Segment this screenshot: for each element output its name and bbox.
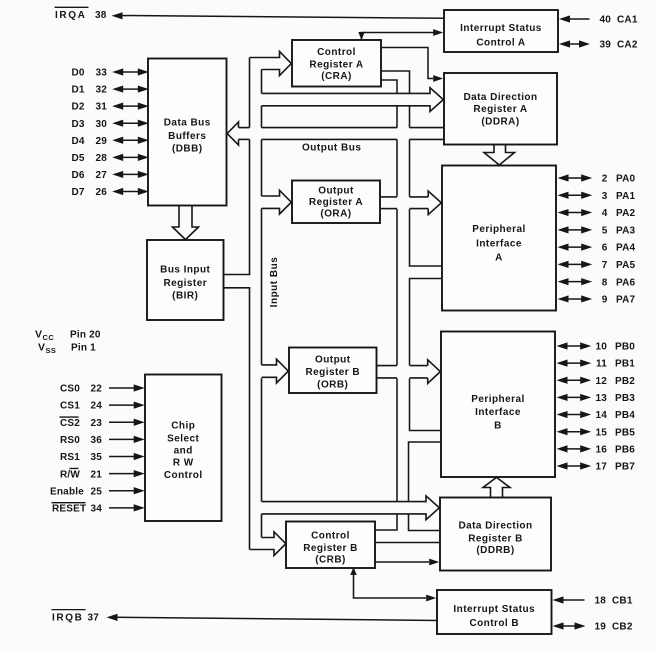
svg-text:40: 40 bbox=[599, 15, 611, 26]
svg-text:15: 15 bbox=[595, 427, 607, 438]
svg-text:9: 9 bbox=[602, 295, 608, 306]
svg-text:D2: D2 bbox=[72, 102, 85, 113]
svg-text:Register A: Register A bbox=[309, 197, 363, 208]
svg-text:CB1: CB1 bbox=[612, 596, 633, 607]
svg-text:R/W: R/W bbox=[60, 469, 80, 480]
svg-text:PA1: PA1 bbox=[616, 191, 636, 202]
svg-text:CB2: CB2 bbox=[612, 622, 633, 633]
svg-text:(DBB): (DBB) bbox=[172, 144, 203, 155]
svg-text:A: A bbox=[495, 253, 503, 264]
svg-text:PA6: PA6 bbox=[616, 277, 636, 288]
svg-text:Peripheral: Peripheral bbox=[471, 394, 524, 405]
svg-text:11: 11 bbox=[596, 359, 607, 370]
svg-text:6: 6 bbox=[602, 243, 608, 254]
svg-text:Output: Output bbox=[315, 355, 351, 366]
svg-text:PB5: PB5 bbox=[615, 427, 635, 438]
svg-text:22: 22 bbox=[90, 384, 102, 395]
svg-text:D7: D7 bbox=[72, 187, 85, 198]
svg-text:Interrupt Status: Interrupt Status bbox=[453, 604, 535, 615]
svg-text:PA0: PA0 bbox=[616, 174, 636, 185]
svg-text:PB3: PB3 bbox=[615, 393, 635, 404]
svg-text:29: 29 bbox=[95, 136, 107, 147]
svg-text:Output: Output bbox=[318, 186, 354, 197]
svg-text:Data Direction: Data Direction bbox=[463, 92, 537, 103]
svg-text:D1: D1 bbox=[72, 85, 85, 96]
svg-text:RS1: RS1 bbox=[60, 452, 80, 463]
svg-text:V: V bbox=[35, 329, 42, 341]
svg-text:PB2: PB2 bbox=[615, 376, 635, 387]
svg-text:25: 25 bbox=[90, 486, 102, 497]
svg-text:PB1: PB1 bbox=[615, 359, 635, 370]
svg-text:Register B: Register B bbox=[303, 543, 358, 554]
svg-text:14: 14 bbox=[595, 410, 607, 421]
svg-text:Register A: Register A bbox=[309, 59, 363, 70]
svg-text:7: 7 bbox=[602, 260, 608, 271]
svg-text:13: 13 bbox=[595, 393, 607, 404]
svg-text:Data Direction: Data Direction bbox=[458, 521, 532, 532]
svg-text:Peripheral: Peripheral bbox=[472, 224, 525, 235]
svg-text:CA1: CA1 bbox=[617, 15, 638, 26]
svg-text:PA4: PA4 bbox=[616, 243, 636, 254]
svg-text:27: 27 bbox=[95, 170, 107, 181]
svg-text:8: 8 bbox=[602, 277, 608, 288]
svg-text:3: 3 bbox=[602, 191, 608, 202]
svg-text:Control B: Control B bbox=[469, 618, 519, 629]
svg-text:Select: Select bbox=[167, 434, 199, 445]
svg-text:Register A: Register A bbox=[473, 104, 527, 115]
svg-text:D3: D3 bbox=[72, 119, 85, 130]
svg-text:CS2: CS2 bbox=[60, 418, 80, 429]
svg-text:Interface: Interface bbox=[475, 407, 521, 418]
svg-text:Control: Control bbox=[317, 47, 356, 58]
svg-text:Register B: Register B bbox=[305, 367, 360, 378]
svg-text:PA5: PA5 bbox=[616, 260, 636, 271]
svg-text:2: 2 bbox=[602, 174, 608, 185]
svg-text:RS0: RS0 bbox=[60, 435, 80, 446]
svg-text:(ORB): (ORB) bbox=[317, 380, 348, 391]
svg-text:19: 19 bbox=[594, 622, 606, 633]
svg-text:10: 10 bbox=[595, 342, 607, 353]
svg-text:17: 17 bbox=[595, 462, 607, 473]
svg-text:31: 31 bbox=[95, 102, 107, 113]
svg-text:Control: Control bbox=[311, 531, 350, 542]
svg-text:24: 24 bbox=[90, 401, 102, 412]
svg-text:CS1: CS1 bbox=[60, 401, 80, 412]
svg-text:D0: D0 bbox=[72, 68, 85, 79]
svg-text:28: 28 bbox=[95, 153, 107, 164]
svg-text:Register B: Register B bbox=[468, 533, 523, 544]
svg-text:SS: SS bbox=[46, 346, 57, 355]
svg-text:(BIR): (BIR) bbox=[172, 291, 198, 302]
svg-text:CS0: CS0 bbox=[60, 384, 80, 395]
svg-text:(DDRB): (DDRB) bbox=[476, 545, 514, 556]
svg-text:5: 5 bbox=[602, 225, 608, 236]
svg-text:34: 34 bbox=[90, 504, 102, 515]
svg-text:PA2: PA2 bbox=[616, 208, 636, 219]
svg-text:Control: Control bbox=[164, 470, 203, 481]
svg-text:23: 23 bbox=[90, 418, 102, 429]
svg-text:D4: D4 bbox=[72, 136, 85, 147]
svg-text:RESET: RESET bbox=[52, 504, 86, 515]
svg-text:Buffers: Buffers bbox=[168, 131, 206, 142]
svg-text:IRQA: IRQA bbox=[55, 10, 86, 21]
svg-text:Bus Input: Bus Input bbox=[160, 265, 210, 276]
svg-text:(ORA): (ORA) bbox=[320, 208, 351, 219]
svg-text:D5: D5 bbox=[72, 153, 85, 164]
svg-text:26: 26 bbox=[95, 187, 107, 198]
svg-text:PB7: PB7 bbox=[615, 462, 635, 473]
svg-text:Control A: Control A bbox=[476, 37, 525, 48]
svg-text:38: 38 bbox=[95, 10, 107, 21]
svg-text:and: and bbox=[174, 446, 193, 457]
svg-text:Register: Register bbox=[163, 278, 207, 289]
svg-text:IRQB: IRQB bbox=[52, 612, 83, 623]
svg-text:PB6: PB6 bbox=[615, 444, 635, 455]
svg-text:Interrupt Status: Interrupt Status bbox=[460, 23, 542, 34]
svg-text:PA3: PA3 bbox=[616, 225, 636, 236]
svg-text:Data Bus: Data Bus bbox=[164, 118, 211, 129]
svg-text:Input Bus: Input Bus bbox=[269, 257, 280, 308]
svg-text:Output Bus: Output Bus bbox=[302, 143, 361, 154]
svg-text:36: 36 bbox=[90, 435, 102, 446]
svg-text:(DDRA): (DDRA) bbox=[481, 116, 519, 127]
svg-text:30: 30 bbox=[95, 119, 107, 130]
svg-text:Chip: Chip bbox=[171, 421, 195, 432]
svg-text:PA7: PA7 bbox=[616, 295, 636, 306]
svg-text:Pin 1: Pin 1 bbox=[71, 343, 96, 354]
svg-text:PB4: PB4 bbox=[615, 410, 635, 421]
svg-text:PB0: PB0 bbox=[615, 342, 635, 353]
svg-text:18: 18 bbox=[594, 596, 606, 607]
svg-text:32: 32 bbox=[95, 85, 107, 96]
svg-text:33: 33 bbox=[95, 68, 107, 79]
svg-text:Enable: Enable bbox=[50, 486, 84, 497]
svg-text:R W: R W bbox=[173, 458, 194, 469]
svg-text:39: 39 bbox=[599, 40, 611, 51]
svg-text:(CRB): (CRB) bbox=[315, 555, 346, 566]
svg-text:B: B bbox=[494, 421, 502, 432]
svg-text:V: V bbox=[38, 342, 45, 354]
svg-text:37: 37 bbox=[88, 612, 100, 623]
svg-text:D6: D6 bbox=[72, 170, 85, 181]
svg-text:16: 16 bbox=[595, 444, 607, 455]
svg-text:4: 4 bbox=[602, 208, 608, 219]
svg-text:Interface: Interface bbox=[476, 238, 522, 249]
svg-text:35: 35 bbox=[90, 452, 102, 463]
svg-text:(CRA): (CRA) bbox=[321, 71, 352, 82]
svg-text:Pin 20: Pin 20 bbox=[70, 330, 101, 341]
svg-text:12: 12 bbox=[595, 376, 607, 387]
svg-text:CA2: CA2 bbox=[617, 40, 638, 51]
svg-text:21: 21 bbox=[90, 469, 102, 480]
